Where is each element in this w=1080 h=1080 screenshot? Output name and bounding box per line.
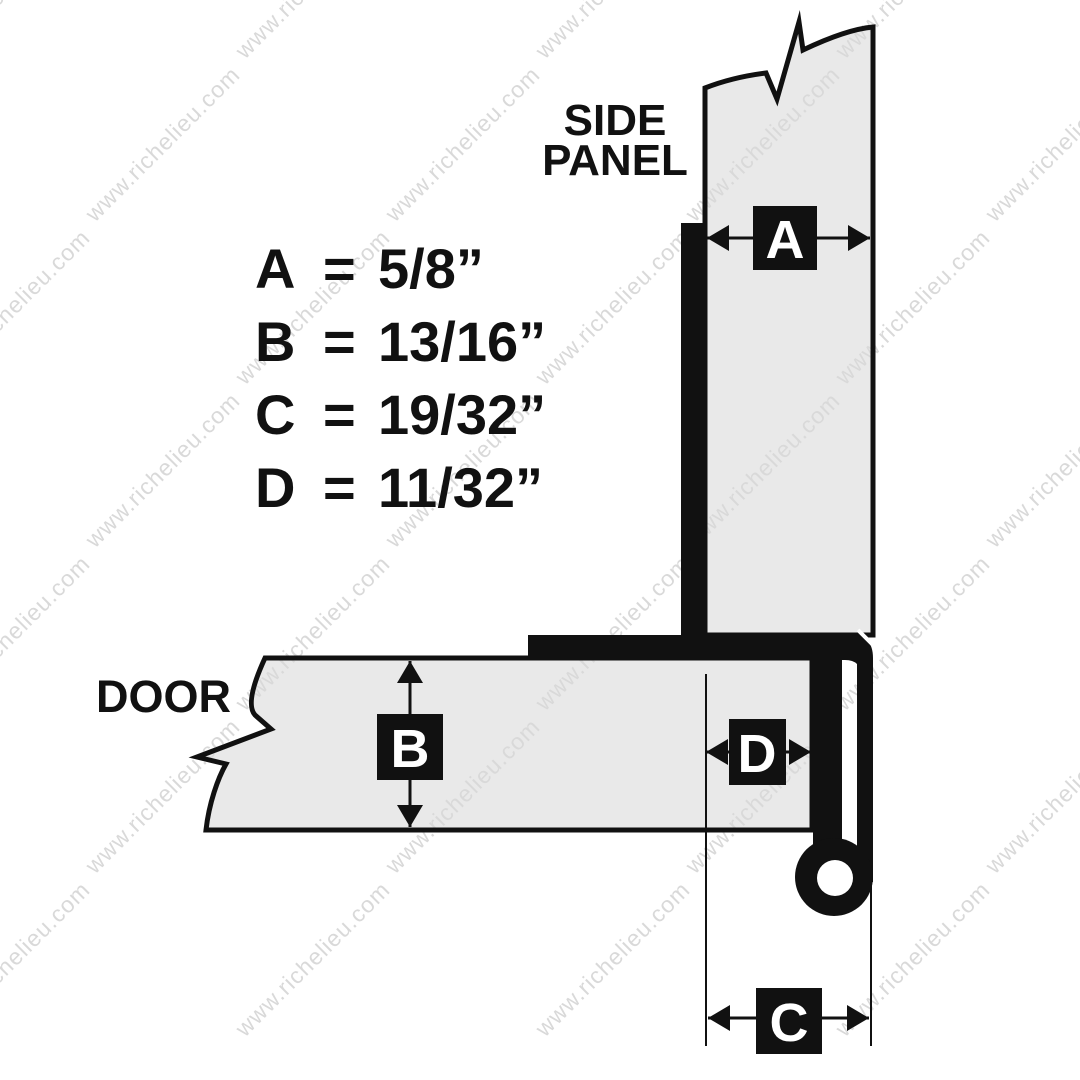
- dimension-legend: A=5/8” B=13/16” C=19/32” D=11/32”: [255, 232, 546, 524]
- side-panel-shape: [705, 22, 873, 635]
- hinge-door-plate: [528, 635, 850, 660]
- side-panel-label-line2: PANEL: [540, 141, 690, 181]
- dimension-key: D: [255, 451, 323, 524]
- arrowhead-left: [708, 1005, 730, 1031]
- marker-letter-c: C: [770, 993, 809, 1053]
- marker-letter-a: A: [766, 210, 805, 270]
- hinge-installation-diagram: A B D C SIDE PANEL: [0, 0, 1080, 1080]
- marker-letter-b: B: [391, 719, 430, 779]
- dimension-value: 11/32”: [378, 456, 543, 519]
- side-panel-label-line1: SIDE: [540, 101, 690, 141]
- equals-sign: =: [323, 305, 378, 378]
- dimension-row-c: C=19/32”: [255, 378, 546, 451]
- dimension-value: 13/16”: [378, 310, 546, 373]
- hinge-side-plate: [681, 223, 703, 637]
- dimension-row-d: D=11/32”: [255, 451, 546, 524]
- dimension-key: B: [255, 305, 323, 378]
- hinge-knuckle-hole: [817, 860, 853, 896]
- arrowhead-right: [847, 1005, 869, 1031]
- dimension-key: A: [255, 232, 323, 305]
- door-label: DOOR: [96, 671, 231, 723]
- dimension-key: C: [255, 378, 323, 451]
- side-panel-label: SIDE PANEL: [540, 101, 690, 181]
- equals-sign: =: [323, 232, 378, 305]
- equals-sign: =: [323, 378, 378, 451]
- dimension-value: 5/8”: [378, 237, 484, 300]
- marker-letter-d: D: [738, 724, 777, 784]
- dimension-row-b: B=13/16”: [255, 305, 546, 378]
- dimension-row-a: A=5/8”: [255, 232, 546, 305]
- dimension-value: 19/32”: [378, 383, 546, 446]
- equals-sign: =: [323, 451, 378, 524]
- dimension-c: C: [708, 988, 869, 1054]
